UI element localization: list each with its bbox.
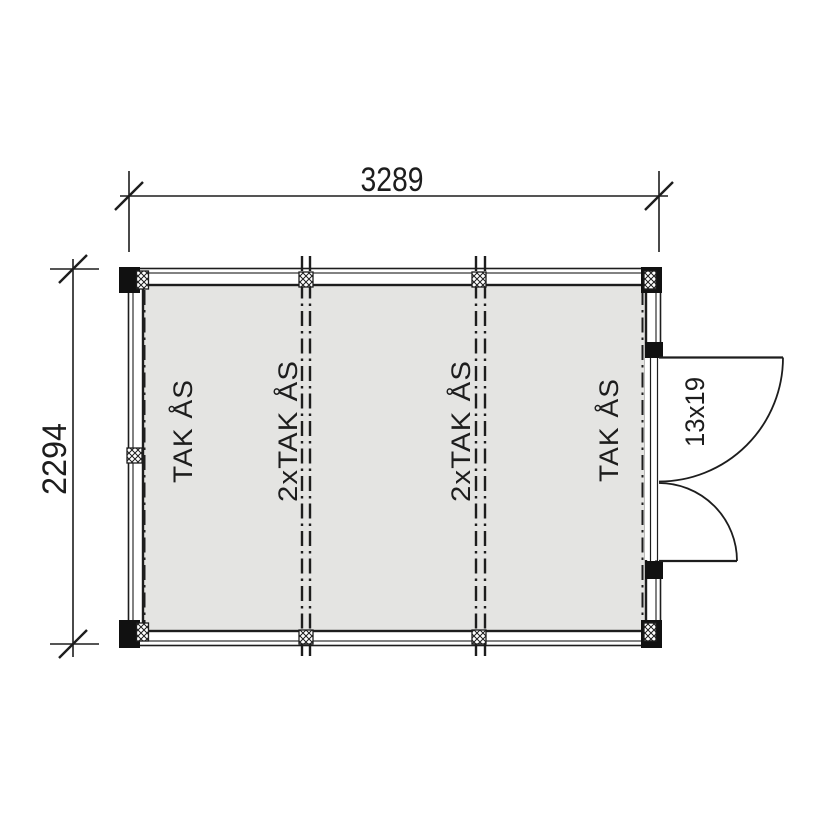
door-swing: 13x19 (659, 358, 783, 562)
door-size-label: 13x19 (680, 377, 710, 447)
dimension-height-value: 2294 (36, 423, 74, 495)
beam-post-bottom (472, 630, 486, 644)
door-arc-bottom (659, 483, 737, 561)
dimension-height: 2294 (36, 255, 99, 658)
corner-post-hatch (644, 623, 656, 641)
floor-area (143, 285, 646, 631)
mid-wall-post-left (127, 448, 142, 463)
dimension-width: 3289 (115, 161, 673, 252)
building-outline (129, 269, 670, 646)
beam-post-top (472, 272, 486, 287)
corner-post-hatch (644, 271, 656, 289)
beam-label-center-left: 2xTAK ÅS (272, 360, 303, 502)
dimension-width-value: 3289 (361, 161, 424, 199)
beam-label-center-right: 2xTAK ÅS (445, 360, 476, 502)
beam-label-right: TAK ÅS (593, 378, 624, 482)
door-jamb-post-bottom (645, 561, 663, 579)
floor-plan-page: 13x19 TAK ÅS 2xTAK ÅS 2xTAK ÅS TAK ÅS 32… (0, 0, 828, 828)
corner-post-hatch (137, 623, 149, 641)
beam-label-left: TAK ÅS (167, 379, 198, 483)
door-arc-top (659, 358, 783, 482)
floor-plan-drawing: 13x19 TAK ÅS 2xTAK ÅS 2xTAK ÅS TAK ÅS 32… (0, 0, 828, 828)
door-jamb-post-top (645, 342, 663, 358)
corner-post-hatch (137, 271, 149, 289)
beam-post-top (299, 272, 313, 287)
beam-post-bottom (299, 630, 313, 644)
